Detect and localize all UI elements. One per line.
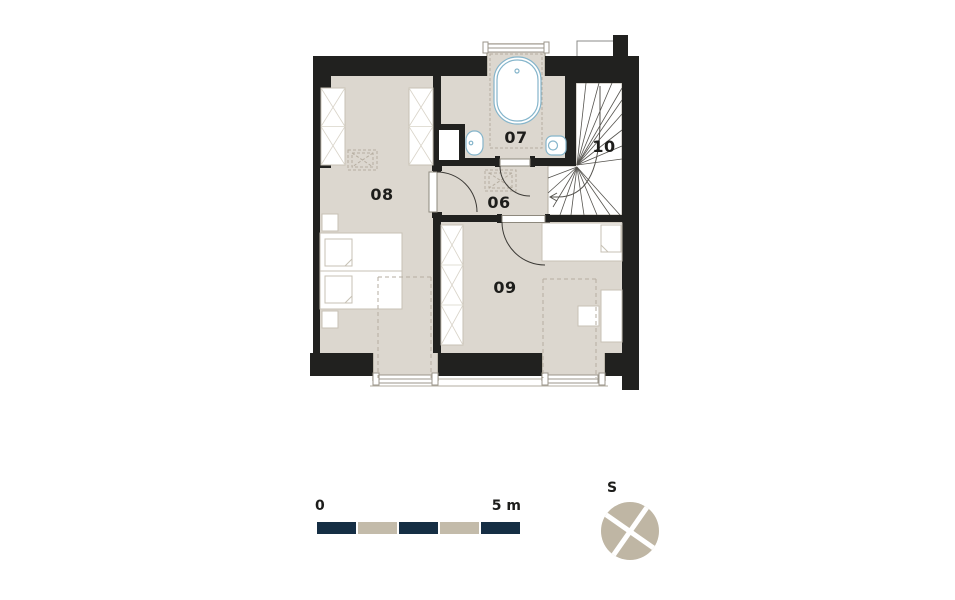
wall-hall-09-2 [545, 215, 624, 222]
door-jamb [432, 165, 442, 171]
window-post [542, 373, 548, 385]
compass: S [601, 502, 659, 560]
scale-bar: 0 5 m [313, 498, 521, 534]
wall-bath-stair [565, 76, 576, 166]
door-jamb [432, 212, 442, 218]
scale-start-label: 0 [315, 498, 325, 514]
window-post [599, 373, 605, 385]
nightstand [322, 311, 338, 328]
pillow [325, 239, 352, 266]
wall-top-mid [545, 56, 576, 76]
room-label-10: 10 [592, 137, 615, 156]
room-label-09: 09 [493, 278, 516, 297]
shaft-interior [439, 130, 459, 160]
window-post [483, 42, 488, 53]
pillow [325, 276, 352, 303]
nightstand [322, 214, 338, 231]
wall-right [622, 56, 639, 390]
sink-tap [469, 141, 473, 145]
wall-top-left [313, 56, 487, 76]
door-jamb [495, 156, 500, 167]
door-leaf-bedroom08 [429, 172, 437, 212]
scale-segment [481, 522, 520, 534]
door-leaf-bedroom09 [502, 216, 545, 223]
single-bed-right [601, 290, 622, 342]
scale-bar-segments [317, 522, 520, 534]
wall-chimney-top-right [613, 35, 628, 56]
window-post [432, 373, 438, 385]
room-label-08: 08 [370, 185, 393, 204]
door-leaf-bathroom [500, 159, 530, 166]
scale-bar-labels: 0 5 m [313, 498, 521, 516]
floor-plan-page: 08 07 06 09 10 0 5 m S [0, 0, 955, 600]
wall-bedroom08-09 [433, 212, 441, 353]
wall-bottom-2 [438, 353, 542, 376]
room-label-06: 06 [487, 193, 510, 212]
wall-bedroom08-bath [433, 76, 441, 124]
roof-outline [577, 41, 613, 56]
scale-segment [358, 522, 397, 534]
room-label-07: 07 [504, 128, 527, 147]
compass-rose-icon [601, 502, 659, 560]
wall-bottom-3 [605, 353, 639, 376]
door-jamb [545, 214, 550, 223]
scale-segment [440, 522, 479, 534]
roof-edge-top-right [577, 41, 613, 56]
ceiling-hatch-box [348, 150, 377, 170]
bathtub-drain [515, 69, 519, 73]
wall-left-lower [313, 168, 320, 376]
compass-axis-line [601, 509, 659, 553]
wall-top-stair [576, 56, 628, 83]
compass-north-label: S [604, 480, 620, 496]
wall-hall-09-1 [433, 215, 502, 222]
scale-segment [317, 522, 356, 534]
sink [466, 131, 483, 155]
scale-segment [399, 522, 438, 534]
window-post [544, 42, 549, 53]
toilet-bowl [549, 141, 558, 150]
door-jamb [497, 214, 502, 223]
scale-end-label: 5 m [492, 498, 521, 514]
door-jamb [530, 156, 535, 167]
window-post [373, 373, 379, 385]
